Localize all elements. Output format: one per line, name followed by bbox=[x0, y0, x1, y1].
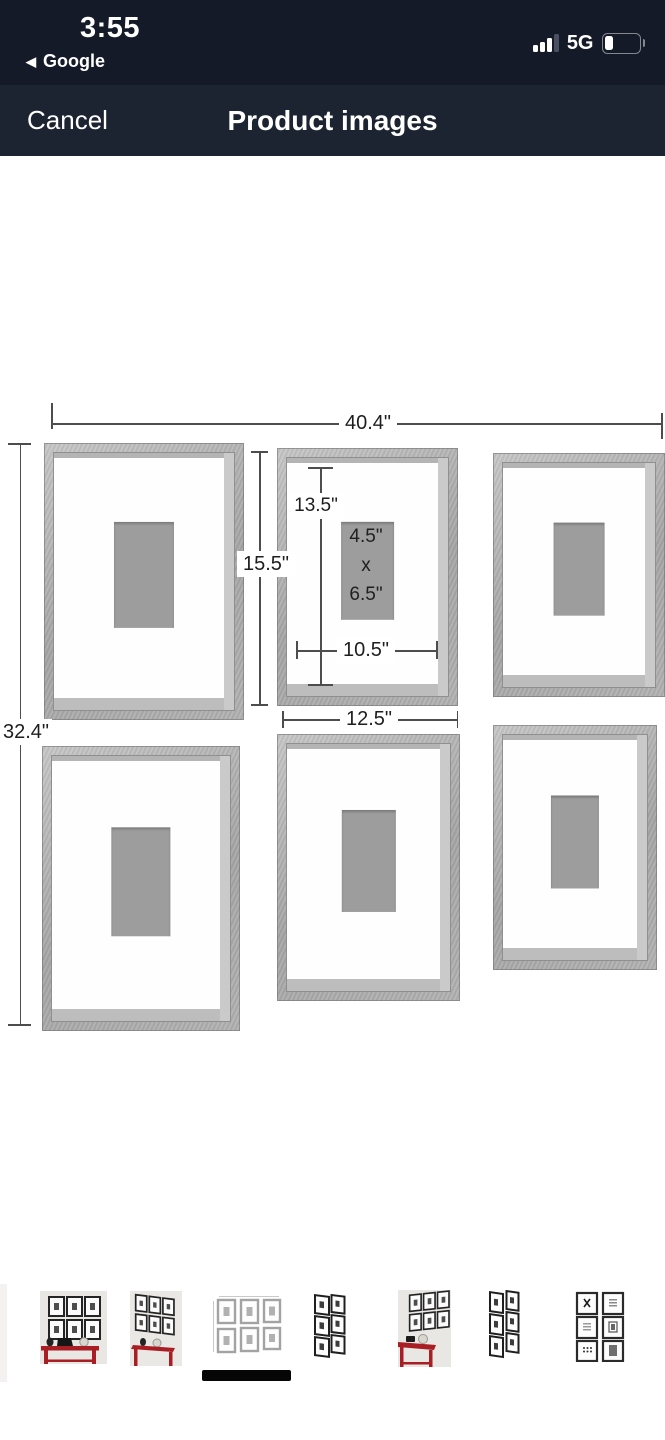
thumbnail-7-frames-front[interactable] bbox=[573, 1291, 628, 1362]
thumbnail-2-gallery-wall-angled[interactable] bbox=[130, 1291, 182, 1366]
photo-height-label: 6.5" bbox=[349, 580, 382, 609]
dimension-tick bbox=[8, 443, 31, 445]
nav-bar: Cancel Product images bbox=[0, 85, 665, 156]
dimension-tick bbox=[457, 711, 459, 728]
dimension-tick bbox=[296, 641, 298, 659]
dimension-label-mat-width: 10.5" bbox=[337, 637, 395, 663]
thumbnail-4-frames-angled[interactable] bbox=[313, 1294, 348, 1362]
dimension-tick bbox=[8, 1024, 31, 1026]
back-to-app-button[interactable]: ◀ Google bbox=[26, 51, 105, 72]
photo-by-label: x bbox=[349, 551, 382, 580]
screen: 3:55 ◀ Google 5G Cancel Product images 4… bbox=[0, 0, 665, 1440]
dimension-tick bbox=[661, 413, 663, 439]
status-time: 3:55 bbox=[70, 12, 150, 45]
dimension-label-frame-height: 15.5" bbox=[237, 551, 295, 577]
frame-bottom-middle bbox=[277, 734, 460, 1001]
dimension-label-mat-height: 13.5" bbox=[288, 493, 344, 519]
photo-width-label: 4.5" bbox=[349, 522, 382, 551]
back-icon: ◀ bbox=[26, 55, 36, 68]
selected-thumbnail-indicator bbox=[202, 1370, 291, 1381]
dimension-label-frame-width: 12.5" bbox=[340, 706, 398, 732]
dimension-line-frame-height bbox=[259, 452, 261, 705]
thumbnail-6-frames-angled-2[interactable] bbox=[489, 1290, 522, 1363]
dimension-label-total-height: 32.4" bbox=[0, 719, 52, 745]
thumbnail-5-gallery-wall-angled-right[interactable] bbox=[398, 1290, 451, 1367]
frame-top-right bbox=[493, 453, 665, 697]
dimension-tick bbox=[308, 467, 333, 469]
dimension-label-total-width: 40.4" bbox=[339, 410, 397, 436]
cancel-button[interactable]: Cancel bbox=[27, 85, 108, 156]
network-type-label: 5G bbox=[567, 32, 594, 55]
signal-strength-icon bbox=[533, 34, 559, 52]
battery-nub bbox=[643, 39, 646, 47]
frame-bottom-left bbox=[42, 746, 240, 1031]
thumbnail-partial-edge bbox=[0, 1284, 7, 1382]
thumbnail-1-gallery-wall-front[interactable] bbox=[40, 1291, 107, 1364]
frame-top-left bbox=[44, 443, 244, 720]
dimension-tick bbox=[436, 641, 438, 659]
frame-bottom-right bbox=[493, 725, 657, 970]
dimension-tick bbox=[51, 403, 53, 429]
status-indicators: 5G bbox=[533, 30, 645, 56]
dimension-tick bbox=[251, 451, 268, 453]
dimension-tick bbox=[282, 711, 284, 728]
thumbnail-3-dimension-diagram-selected[interactable] bbox=[212, 1294, 282, 1360]
status-bar: 3:55 ◀ Google 5G bbox=[0, 0, 665, 85]
back-app-label: Google bbox=[43, 51, 105, 72]
dimension-tick bbox=[251, 704, 268, 706]
photo-size-annotation: 4.5" x 6.5" bbox=[349, 522, 382, 609]
dimension-tick bbox=[308, 684, 333, 686]
battery-icon bbox=[602, 33, 641, 54]
